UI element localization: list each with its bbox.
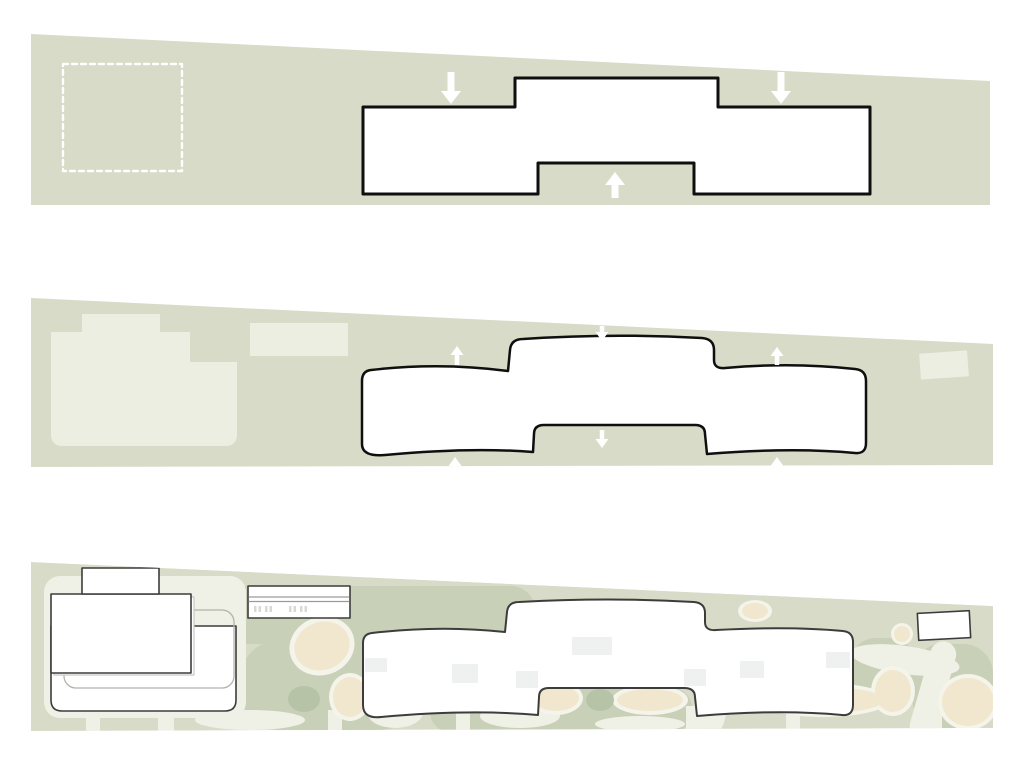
parking-stall-tick-4 [270, 606, 273, 612]
existing-building-rooftop [82, 568, 159, 594]
roof-element-3 [452, 664, 478, 683]
roof-element-2 [365, 658, 387, 672]
planting-bed-8 [875, 670, 911, 712]
middle-massing-diagram [31, 298, 993, 474]
parking-stall-tick-5 [289, 606, 292, 612]
shrub-blob-2 [288, 686, 320, 712]
parking-stall-tick-2 [259, 606, 262, 612]
parking-stall-tick-8 [305, 606, 308, 612]
massing-diagram [0, 0, 1024, 768]
parking-stall-tick-3 [265, 606, 268, 612]
parking-stall-tick-1 [254, 606, 257, 612]
parking-stall-tick-6 [294, 606, 297, 612]
winding-path-1 [195, 710, 305, 730]
roof-element-5 [684, 669, 706, 686]
shrub-blob-1 [586, 689, 614, 711]
roof-element-6 [740, 661, 764, 678]
path-slit-2 [158, 714, 174, 732]
roof-element-1 [572, 637, 612, 655]
path-slit-1 [86, 714, 100, 732]
planting-bed-7 [894, 626, 910, 642]
small-outbuilding [917, 611, 970, 641]
planting-bed-9 [942, 678, 994, 726]
neighbor-mass-right [919, 350, 969, 379]
winding-path-4 [595, 716, 685, 732]
top-massing-diagram [31, 34, 990, 205]
existing-building-upper [51, 594, 191, 673]
roof-element-4 [516, 671, 538, 688]
roof-element-7 [826, 652, 850, 668]
neighbor-mass-center [250, 323, 348, 356]
planting-bed-4 [617, 689, 683, 711]
parking-stall-tick-7 [300, 606, 303, 612]
planting-bed-2 [333, 677, 367, 717]
bottom-site-plan [31, 562, 998, 742]
planting-bed-6 [742, 603, 768, 619]
massing-diagram-stage [0, 0, 1024, 768]
